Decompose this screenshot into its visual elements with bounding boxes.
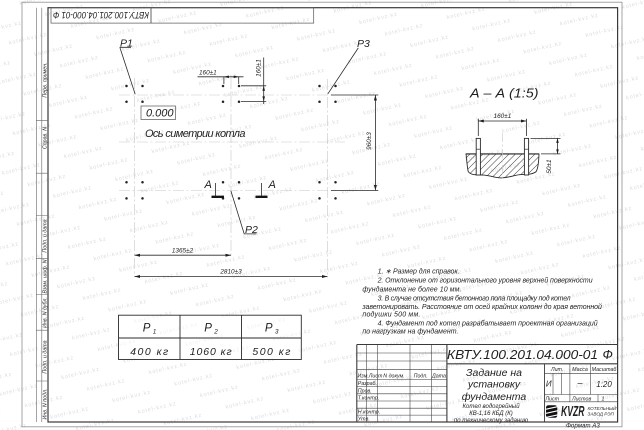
svg-text:kotel-kvz.kz: kotel-kvz.kz [174, 373, 214, 388]
svg-text:kotel-kvz.kz: kotel-kvz.kz [582, 245, 622, 260]
svg-text:kotel-kvz.kz: kotel-kvz.kz [313, 391, 353, 406]
svg-text:kotel-kvz.kz: kotel-kvz.kz [301, 119, 341, 134]
svg-text:kotel-kvz.kz: kotel-kvz.kz [225, 396, 265, 411]
svg-text:kotel-kvz.kz: kotel-kvz.kz [89, 157, 129, 172]
svg-text:kotel-kvz.kz: kotel-kvz.kz [258, 277, 298, 292]
svg-text:kotel-kvz.kz: kotel-kvz.kz [330, 221, 370, 236]
svg-text:kotel-kvz.kz: kotel-kvz.kz [309, 300, 349, 315]
svg-text:kotel-kvz.kz: kotel-kvz.kz [337, 91, 377, 106]
svg-text:Подп.: Подп. [414, 374, 428, 380]
svg-text:kotel-kvz.kz: kotel-kvz.kz [363, 102, 403, 117]
svg-text:kotel-kvz.kz: kotel-kvz.kz [557, 234, 597, 249]
svg-text:Лит.: Лит. [550, 367, 563, 373]
svg-text:kotel-kvz.kz: kotel-kvz.kz [6, 253, 46, 268]
svg-text:Перв. примен.: Перв. примен. [43, 62, 49, 97]
svg-text:kotel-kvz.kz: kotel-kvz.kz [262, 368, 302, 383]
svg-text:kotel-kvz.kz: kotel-kvz.kz [224, 84, 264, 99]
svg-text:Разраб.: Разраб. [358, 381, 377, 387]
svg-text:kotel-kvz.kz: kotel-kvz.kz [585, 24, 625, 39]
svg-text:kotel-kvz.kz: kotel-kvz.kz [374, 63, 414, 78]
svg-text:kotel-kvz.kz: kotel-kvz.kz [209, 33, 249, 48]
svg-text:400 кг: 400 кг [130, 346, 168, 358]
svg-text:kotel-kvz.kz: kotel-kvz.kz [251, 407, 291, 422]
svg-text:kotel-kvz.kz: kotel-kvz.kz [636, 47, 644, 62]
svg-text:kotel-kvz.kz: kotel-kvz.kz [155, 231, 195, 246]
svg-text:kotel-kvz.kz: kotel-kvz.kz [0, 151, 16, 166]
svg-text:kotel-kvz.kz: kotel-kvz.kz [108, 299, 148, 314]
svg-text:КВТУ.100.201.04.000-01: КВТУ.100.201.04.000-01 [447, 347, 598, 362]
svg-text:kotel-kvz.kz: kotel-kvz.kz [560, 13, 600, 28]
svg-text:КВТУ.100.201.04.000-01 Ф: КВТУ.100.201.04.000-01 Ф [53, 10, 149, 20]
svg-text:Лист: Лист [544, 396, 559, 402]
svg-text:kotel-kvz.kz: kotel-kvz.kz [34, 43, 74, 58]
svg-text:kotel-kvz.kz: kotel-kvz.kz [279, 198, 319, 213]
svg-text:kotel-kvz.kz: kotel-kvz.kz [130, 220, 170, 235]
svg-text:kotel-kvz.kz: kotel-kvz.kz [436, 46, 476, 61]
svg-text:Подп. и дата: Подп. и дата [43, 340, 49, 373]
svg-text:1365±2: 1365±2 [172, 247, 194, 254]
svg-text:ЗАВОД РЭП: ЗАВОД РЭП [588, 411, 615, 416]
svg-text:И: И [546, 380, 552, 389]
svg-text:KVZR: KVZR [561, 404, 585, 420]
svg-text:kotel-kvz.kz: kotel-kvz.kz [53, 185, 93, 200]
svg-text:kotel-kvz.kz: kotel-kvz.kz [0, 292, 34, 307]
svg-text:Утв.: Утв. [358, 417, 370, 423]
svg-text:kotel-kvz.kz: kotel-kvz.kz [202, 163, 242, 178]
svg-text:А: А [204, 179, 212, 191]
svg-text:kotel-kvz.kz: kotel-kvz.kz [188, 112, 228, 127]
svg-text:kotel-kvz.kz: kotel-kvz.kz [264, 147, 304, 162]
svg-text:50±1: 50±1 [546, 159, 553, 174]
svg-text:kotel-kvz.kz: kotel-kvz.kz [276, 419, 316, 430]
svg-text:2. Отклонение от горизонтальн: 2. Отклонение от горизонтального уровня … [377, 276, 593, 284]
svg-text:kotel-kvz.kz: kotel-kvz.kz [177, 152, 217, 167]
svg-text:kotel-kvz.kz: kotel-kvz.kz [623, 308, 644, 323]
svg-text:kotel-kvz.kz: kotel-kvz.kz [46, 315, 86, 330]
svg-text:kotel-kvz.kz: kotel-kvz.kz [626, 87, 644, 102]
svg-text:kotel-kvz.kz: kotel-kvz.kz [615, 126, 644, 141]
svg-text:kotel-kvz.kz: kotel-kvz.kz [418, 216, 458, 231]
svg-text:kotel-kvz.kz: kotel-kvz.kz [107, 0, 147, 2]
svg-text:kotel-kvz.kz: kotel-kvz.kz [589, 115, 629, 130]
svg-text:kotel-kvz.kz: kotel-kvz.kz [348, 51, 388, 66]
svg-text:Инв. N дубл.: Инв. N дубл. [43, 297, 49, 328]
svg-text:kotel-kvz.kz: kotel-kvz.kz [461, 57, 501, 72]
svg-text:kotel-kvz.kz: kotel-kvz.kz [611, 36, 644, 51]
svg-text:2810±3: 2810±3 [219, 268, 242, 275]
svg-text:kotel-kvz.kz: kotel-kvz.kz [35, 355, 75, 370]
svg-text:Инв. N подл.: Инв. N подл. [43, 389, 49, 420]
svg-text:kotel-kvz.kz: kotel-kvz.kz [170, 282, 210, 297]
svg-text:kotel-kvz.kz: kotel-kvz.kz [392, 204, 432, 219]
svg-text:kotel-kvz.kz: kotel-kvz.kz [564, 103, 604, 118]
svg-text:kotel-kvz.kz: kotel-kvz.kz [200, 384, 240, 399]
svg-text:kotel-kvz.kz: kotel-kvz.kz [112, 390, 152, 405]
svg-text:kotel-kvz.kz: kotel-kvz.kz [100, 117, 140, 132]
svg-text:kotel-kvz.kz: kotel-kvz.kz [268, 238, 308, 253]
svg-text:kotel-kvz.kz: kotel-kvz.kz [158, 10, 198, 25]
svg-text:подушки 500 мм.: подушки 500 мм. [362, 311, 420, 319]
svg-text:kotel-kvz.kz: kotel-kvz.kz [72, 327, 112, 342]
svg-text:kotel-kvz.kz: kotel-kvz.kz [119, 259, 159, 274]
svg-text:kotel-kvz.kz: kotel-kvz.kz [506, 211, 546, 226]
svg-text:kotel-kvz.kz: kotel-kvz.kz [600, 75, 640, 90]
svg-text:kotel-kvz.kz: kotel-kvz.kz [0, 372, 13, 387]
svg-text:Ось симетрии котла: Ось симетрии котла [145, 128, 246, 140]
svg-text:Р: Р [204, 322, 212, 334]
svg-text:kotel-kvz.kz: kotel-kvz.kz [0, 411, 2, 426]
svg-text:kotel-kvz.kz: kotel-kvz.kz [82, 287, 122, 302]
svg-text:kotel-kvz.kz: kotel-kvz.kz [0, 190, 5, 205]
svg-text:kotel-kvz.kz: kotel-kvz.kz [578, 155, 618, 170]
svg-text:Взам. шиф. N: Взам. шиф. N [43, 259, 49, 293]
svg-text:фундамента не более 10 мм.: фундамента не более 10 мм. [362, 285, 461, 293]
svg-text:kotel-kvz.kz: kotel-kvz.kz [85, 66, 125, 81]
svg-text:kotel-kvz.kz: kotel-kvz.kz [399, 74, 439, 89]
svg-text:kotel-kvz.kz: kotel-kvz.kz [359, 11, 399, 26]
svg-text:заветонировать. Расстояние от: заветонировать. Расстояние от осей крайн… [361, 303, 602, 311]
svg-text:kotel-kvz.kz: kotel-kvz.kz [20, 304, 60, 319]
svg-text:Листов: Листов [571, 396, 592, 402]
svg-text:kotel-kvz.kz: kotel-kvz.kz [472, 18, 512, 33]
svg-text:kotel-kvz.kz: kotel-kvz.kz [553, 143, 593, 158]
svg-text:kotel-kvz.kz: kotel-kvz.kz [604, 166, 644, 181]
svg-text:kotel-kvz.kz: kotel-kvz.kz [534, 1, 574, 16]
svg-text:kotel-kvz.kz: kotel-kvz.kz [275, 107, 315, 122]
svg-text:kotel-kvz.kz: kotel-kvz.kz [104, 208, 144, 223]
svg-text:Р3: Р3 [357, 38, 370, 50]
svg-text:kotel-kvz.kz: kotel-kvz.kz [498, 29, 538, 44]
svg-text:kotel-kvz.kz: kotel-kvz.kz [527, 132, 567, 147]
svg-text:Р: Р [143, 322, 151, 334]
svg-text:Формат А3: Формат А3 [566, 423, 600, 430]
svg-text:Задание на: Задание на [466, 367, 522, 379]
svg-text:kotel-kvz.kz: kotel-kvz.kz [403, 165, 443, 180]
svg-text:kotel-kvz.kz: kotel-kvz.kz [634, 268, 644, 283]
svg-text:kotel-kvz.kz: kotel-kvz.kz [454, 188, 494, 203]
svg-text:kotel-kvz.kz: kotel-kvz.kz [286, 68, 326, 83]
svg-text:Пров.: Пров. [358, 388, 372, 394]
svg-text:kotel-kvz.kz: kotel-kvz.kz [388, 114, 428, 129]
svg-text:kotel-kvz.kz: kotel-kvz.kz [166, 192, 206, 207]
svg-text:kotel-kvz.kz: kotel-kvz.kz [429, 176, 469, 191]
svg-text:kotel-kvz.kz: kotel-kvz.kz [400, 386, 440, 401]
svg-text:kotel-kvz.kz: kotel-kvz.kz [638, 359, 644, 374]
svg-text:kotel-kvz.kz: kotel-kvz.kz [473, 330, 513, 345]
svg-text:N докум.: N докум. [383, 374, 404, 380]
svg-text:kotel-kvz.kz: kotel-kvz.kz [271, 17, 311, 32]
svg-text:1. ∗ Размер для справок.: 1. ∗ Размер для справок. [378, 268, 460, 276]
svg-text:kotel-kvz.kz: kotel-kvz.kz [425, 86, 465, 101]
svg-text:Ф: Ф [603, 347, 613, 362]
svg-text:kotel-kvz.kz: kotel-kvz.kz [378, 153, 418, 168]
svg-text:kotel-kvz.kz: kotel-kvz.kz [480, 199, 520, 214]
svg-text:Справ. N: Справ. N [43, 127, 49, 149]
svg-text:Масса: Масса [572, 367, 588, 373]
svg-text:kotel-kvz.kz: kotel-kvz.kz [144, 271, 184, 286]
svg-text:Р: Р [265, 322, 273, 334]
svg-text:Котел водогрейный: Котел водогрейный [462, 403, 520, 410]
svg-text:kotel-kvz.kz: kotel-kvz.kz [64, 146, 104, 161]
svg-text:kotel-kvz.kz: kotel-kvz.kz [61, 367, 101, 382]
svg-text:kotel-kvz.kz: kotel-kvz.kz [426, 397, 466, 412]
svg-text:kotel-kvz.kz: kotel-kvz.kz [220, 0, 260, 8]
svg-text:kotel-kvz.kz: kotel-kvz.kz [2, 162, 42, 177]
svg-text:kotel-kvz.kz: kotel-kvz.kz [312, 79, 352, 94]
svg-text:kotel-kvz.kz: kotel-kvz.kz [411, 346, 451, 361]
svg-text:kotel-kvz.kz: kotel-kvz.kz [74, 106, 114, 121]
svg-text:kotel-kvz.kz: kotel-kvz.kz [542, 183, 582, 198]
svg-text:1:20: 1:20 [596, 380, 612, 389]
svg-text:kotel-kvz.kz: kotel-kvz.kz [538, 92, 578, 107]
svg-text:kotel-kvz.kz: kotel-kvz.kz [487, 69, 527, 84]
svg-text:kotel-kvz.kz: kotel-kvz.kz [287, 379, 327, 394]
svg-text:kotel-kvz.kz: kotel-kvz.kz [50, 406, 90, 421]
svg-text:по нагрузкам на фундамент.: по нагрузкам на фундамент. [362, 327, 458, 335]
svg-text:kotel-kvz.kz: kotel-kvz.kz [138, 401, 178, 416]
svg-text:160±1: 160±1 [199, 70, 217, 77]
svg-text:kotel-kvz.kz: kotel-kvz.kz [140, 180, 180, 195]
svg-text:kotel-kvz.kz: kotel-kvz.kz [382, 244, 422, 259]
svg-text:kotel-kvz.kz: kotel-kvz.kz [630, 178, 644, 193]
svg-text:kotel-kvz.kz: kotel-kvz.kz [308, 0, 348, 3]
svg-text:kotel-kvz.kz: kotel-kvz.kz [305, 209, 345, 224]
svg-text:kotel-kvz.kz: kotel-kvz.kz [568, 194, 608, 209]
svg-text:Подп. и дата: Подп. и дата [43, 219, 49, 252]
svg-text:kotel-kvz.kz: kotel-kvz.kz [250, 96, 290, 111]
svg-text:kotel-kvz.kz: kotel-kvz.kz [531, 222, 571, 237]
svg-text:kotel-kvz.kz: kotel-kvz.kz [572, 285, 612, 300]
svg-text:–: – [576, 378, 583, 388]
svg-text:4. Фундамент под котел разраб: 4. Фундамент под котел разрабатывает про… [378, 319, 598, 327]
svg-text:kotel-kvz.kz: kotel-kvz.kz [523, 41, 563, 56]
svg-text:kotel-kvz.kz: kotel-kvz.kz [163, 413, 203, 428]
svg-text:kotel-kvz.kz: kotel-kvz.kz [0, 332, 24, 347]
svg-text:kotel-kvz.kz: kotel-kvz.kz [298, 340, 338, 355]
svg-text:kotel-kvz.kz: kotel-kvz.kz [326, 130, 366, 145]
svg-text:kotel-kvz.kz: kotel-kvz.kz [593, 206, 633, 221]
svg-text:kotel-kvz.kz: kotel-kvz.kz [574, 64, 614, 79]
svg-text:kotel-kvz.kz: kotel-kvz.kz [640, 138, 644, 153]
svg-text:А – А (1:5): А – А (1:5) [469, 85, 539, 100]
svg-text:kotel-kvz.kz: kotel-kvz.kz [597, 296, 637, 311]
svg-text:960±3: 960±3 [366, 132, 373, 150]
svg-text:КОТЕЛЬНЫЙ: КОТЕЛЬНЫЙ [588, 404, 618, 411]
svg-text:А: А [268, 179, 276, 191]
svg-text:kotel-kvz.kz: kotel-kvz.kz [297, 28, 337, 43]
svg-text:kotel-kvz.kz: kotel-kvz.kz [290, 158, 330, 173]
svg-text:Т.контр.: Т.контр. [358, 396, 379, 402]
svg-text:по техническому заданию: по техническому заданию [454, 418, 529, 424]
svg-text:kotel-kvz.kz: kotel-kvz.kz [386, 335, 426, 350]
svg-text:0.000: 0.000 [146, 108, 174, 120]
svg-text:kotel-kvz.kz: kotel-kvz.kz [612, 347, 644, 362]
svg-text:1060 кг: 1060 кг [190, 346, 232, 358]
svg-text:КВ-1,16 КБД (К): КВ-1,16 КБД (К) [469, 411, 513, 417]
svg-text:160±1: 160±1 [494, 113, 512, 120]
svg-text:kotel-kvz.kz: kotel-kvz.kz [76, 418, 116, 430]
svg-text:Н.контр.: Н.контр. [358, 410, 380, 416]
svg-text:kotel-kvz.kz: kotel-kvz.kz [619, 217, 644, 232]
svg-text:kotel-kvz.kz: kotel-kvz.kz [367, 193, 407, 208]
svg-text:kotel-kvz.kz: kotel-kvz.kz [495, 250, 535, 265]
svg-text:Дата: Дата [431, 374, 446, 380]
svg-text:kotel-kvz.kz: kotel-kvz.kz [235, 45, 275, 60]
svg-text:установку: установку [467, 378, 521, 390]
svg-text:kotel-kvz.kz: kotel-kvz.kz [0, 281, 9, 296]
svg-text:160±1: 160±1 [256, 59, 263, 77]
svg-text:kotel-kvz.kz: kotel-kvz.kz [31, 264, 71, 279]
svg-text:1: 1 [153, 329, 157, 336]
svg-text:kotel-kvz.kz: kotel-kvz.kz [78, 197, 118, 212]
svg-text:kotel-kvz.kz: kotel-kvz.kz [384, 23, 424, 38]
svg-text:kotel-kvz.kz: kotel-kvz.kz [627, 399, 644, 414]
svg-text:kotel-kvz.kz: kotel-kvz.kz [151, 140, 191, 155]
svg-text:kotel-kvz.kz: kotel-kvz.kz [410, 34, 450, 49]
svg-text:Изм.Лист: Изм.Лист [358, 374, 384, 380]
svg-text:2: 2 [213, 329, 218, 336]
svg-text:фундамента: фундамента [462, 391, 527, 403]
svg-text:kotel-kvz.kz: kotel-kvz.kz [0, 20, 22, 35]
svg-text:kotel-kvz.kz: kotel-kvz.kz [0, 241, 20, 256]
svg-text:kotel-kvz.kz: kotel-kvz.kz [356, 232, 396, 247]
svg-text:kotel-kvz.kz: kotel-kvz.kz [93, 248, 133, 263]
svg-text:kotel-kvz.kz: kotel-kvz.kz [0, 423, 28, 430]
svg-text:kotel-kvz.kz: kotel-kvz.kz [196, 294, 236, 309]
svg-text:kotel-kvz.kz: kotel-kvz.kz [0, 60, 12, 75]
svg-text:kotel-kvz.kz: kotel-kvz.kz [60, 55, 100, 70]
svg-text:kotel-kvz.kz: kotel-kvz.kz [184, 22, 224, 37]
svg-text:kotel-kvz.kz: kotel-kvz.kz [446, 6, 486, 21]
svg-text:kotel-kvz.kz: kotel-kvz.kz [0, 202, 30, 217]
svg-text:kotel-kvz.kz: kotel-kvz.kz [0, 71, 37, 86]
svg-text:kotel-kvz.kz: kotel-kvz.kz [549, 52, 589, 67]
svg-text:kotel-kvz.kz: kotel-kvz.kz [68, 236, 108, 251]
svg-text:kotel-kvz.kz: kotel-kvz.kz [27, 174, 67, 189]
svg-text:kotel-kvz.kz: kotel-kvz.kz [414, 125, 454, 140]
svg-text:kotel-kvz.kz: kotel-kvz.kz [0, 111, 26, 126]
svg-text:kotel-kvz.kz: kotel-kvz.kz [49, 94, 89, 109]
svg-text:kotel-kvz.kz: kotel-kvz.kz [0, 383, 38, 398]
svg-text:kotel-kvz.kz: kotel-kvz.kz [444, 227, 484, 242]
svg-text:kotel-kvz.kz: kotel-kvz.kz [192, 203, 232, 218]
svg-text:kotel-kvz.kz: kotel-kvz.kz [622, 0, 644, 11]
svg-text:kotel-kvz.kz: kotel-kvz.kz [608, 257, 644, 272]
svg-text:kotel-kvz.kz: kotel-kvz.kz [364, 414, 404, 429]
svg-text:kotel-kvz.kz: kotel-kvz.kz [19, 0, 59, 7]
svg-text:kotel-kvz.kz: kotel-kvz.kz [341, 181, 381, 196]
svg-text:kotel-kvz.kz: kotel-kvz.kz [440, 137, 480, 152]
svg-text:kotel-kvz.kz: kotel-kvz.kz [0, 100, 1, 115]
svg-text:kotel-kvz.kz: kotel-kvz.kz [320, 261, 360, 276]
svg-text:3. В случае отсутствия бетонн: 3. В случае отсутствия бетонного пола пл… [378, 295, 571, 303]
svg-text:kotel-kvz.kz: kotel-kvz.kz [57, 276, 97, 291]
svg-text:kotel-kvz.kz: kotel-kvz.kz [86, 378, 126, 393]
svg-text:kotel-kvz.kz: kotel-kvz.kz [148, 361, 188, 376]
svg-text:kotel-kvz.kz: kotel-kvz.kz [260, 56, 300, 71]
svg-text:kotel-kvz.kz: kotel-kvz.kz [520, 262, 560, 277]
svg-text:kotel-kvz.kz: kotel-kvz.kz [283, 289, 323, 304]
svg-text:Масштаб: Масштаб [592, 367, 618, 373]
svg-text:kotel-kvz.kz: kotel-kvz.kz [469, 239, 509, 254]
svg-text:kotel-kvz.kz: kotel-kvz.kz [147, 50, 187, 65]
svg-text:3: 3 [275, 329, 279, 336]
svg-text:1: 1 [602, 396, 605, 402]
svg-text:500 кг: 500 кг [252, 346, 290, 358]
